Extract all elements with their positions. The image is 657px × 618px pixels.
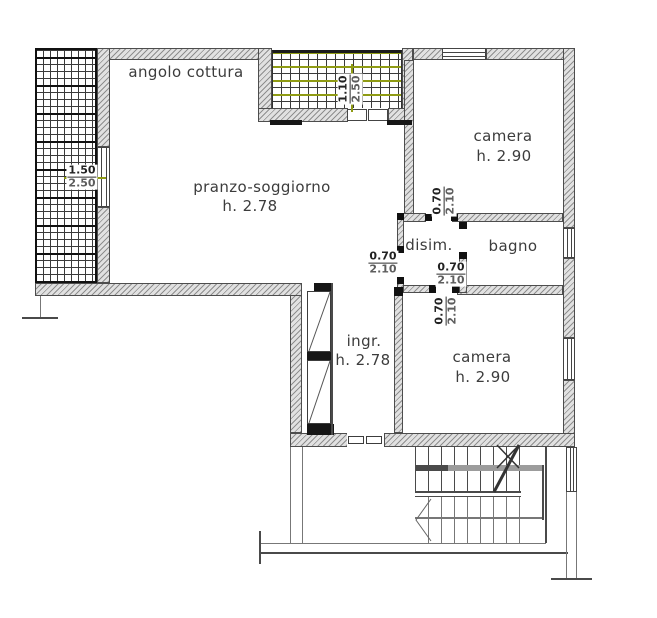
label-bedroom-north-height: h. 2.90 — [476, 147, 531, 165]
dim-balcony-west-door: 1.50 2.50 — [66, 165, 97, 190]
label-entry: ingr. — [347, 332, 382, 350]
label-kitchen: angolo cottura — [128, 63, 243, 81]
label-hall: disim. — [405, 236, 452, 254]
label-bath: bagno — [489, 237, 538, 255]
label-bedroom-south: camera — [452, 348, 511, 366]
dim-door-bedroom-south: 0.70 2.10 — [434, 295, 459, 326]
dim-balcony-north-door: 1.10 2.50 — [338, 73, 363, 104]
label-living-height: h. 2.78 — [222, 197, 277, 215]
floor-plan-canvas: angolo cottura pranzo-soggiorno h. 2.78 … — [0, 0, 657, 618]
dim-door-hall-west: 0.70 2.10 — [367, 251, 398, 276]
dim-door-bath: 0.70 2.10 — [435, 262, 466, 287]
label-entry-height: h. 2.78 — [335, 351, 390, 369]
label-living: pranzo-soggiorno — [193, 178, 331, 196]
label-bedroom-north: camera — [473, 127, 532, 145]
label-bedroom-south-height: h. 2.90 — [455, 368, 510, 386]
dim-door-bedroom-north: 0.70 2.10 — [432, 185, 457, 216]
diagonal-lines-overlay — [0, 0, 657, 618]
